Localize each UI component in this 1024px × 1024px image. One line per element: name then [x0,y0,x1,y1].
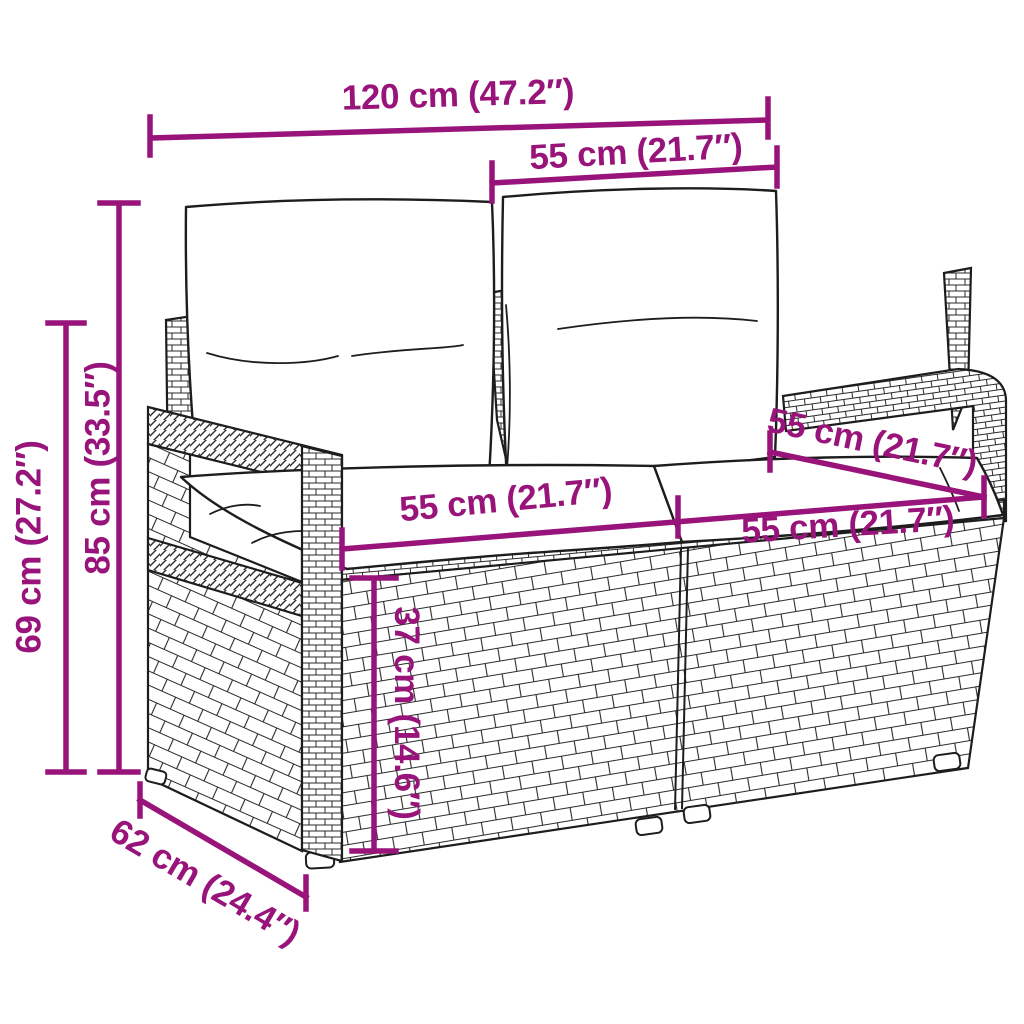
dim-overall-width-label: 120 cm (47.2″) [341,72,574,118]
sofa-dimension-canvas: 120 cm (47.2″) 55 cm (21.7″) 85 cm (33.5… [0,0,1024,1024]
foot [683,804,711,823]
back-cushion-right [502,188,778,481]
product-dimension-diagram: 120 cm (47.2″) 55 cm (21.7″) 85 cm (33.5… [0,0,1024,1024]
dim-overall-height-label: 85 cm (33.5″) [78,361,117,574]
dim-frame-height-label: 69 cm (27.2″) [9,440,48,653]
front-left-post [302,446,342,861]
foot [933,752,961,771]
foot [635,816,663,835]
dim-seat-height-label: 37 cm (14.6″) [387,606,426,819]
